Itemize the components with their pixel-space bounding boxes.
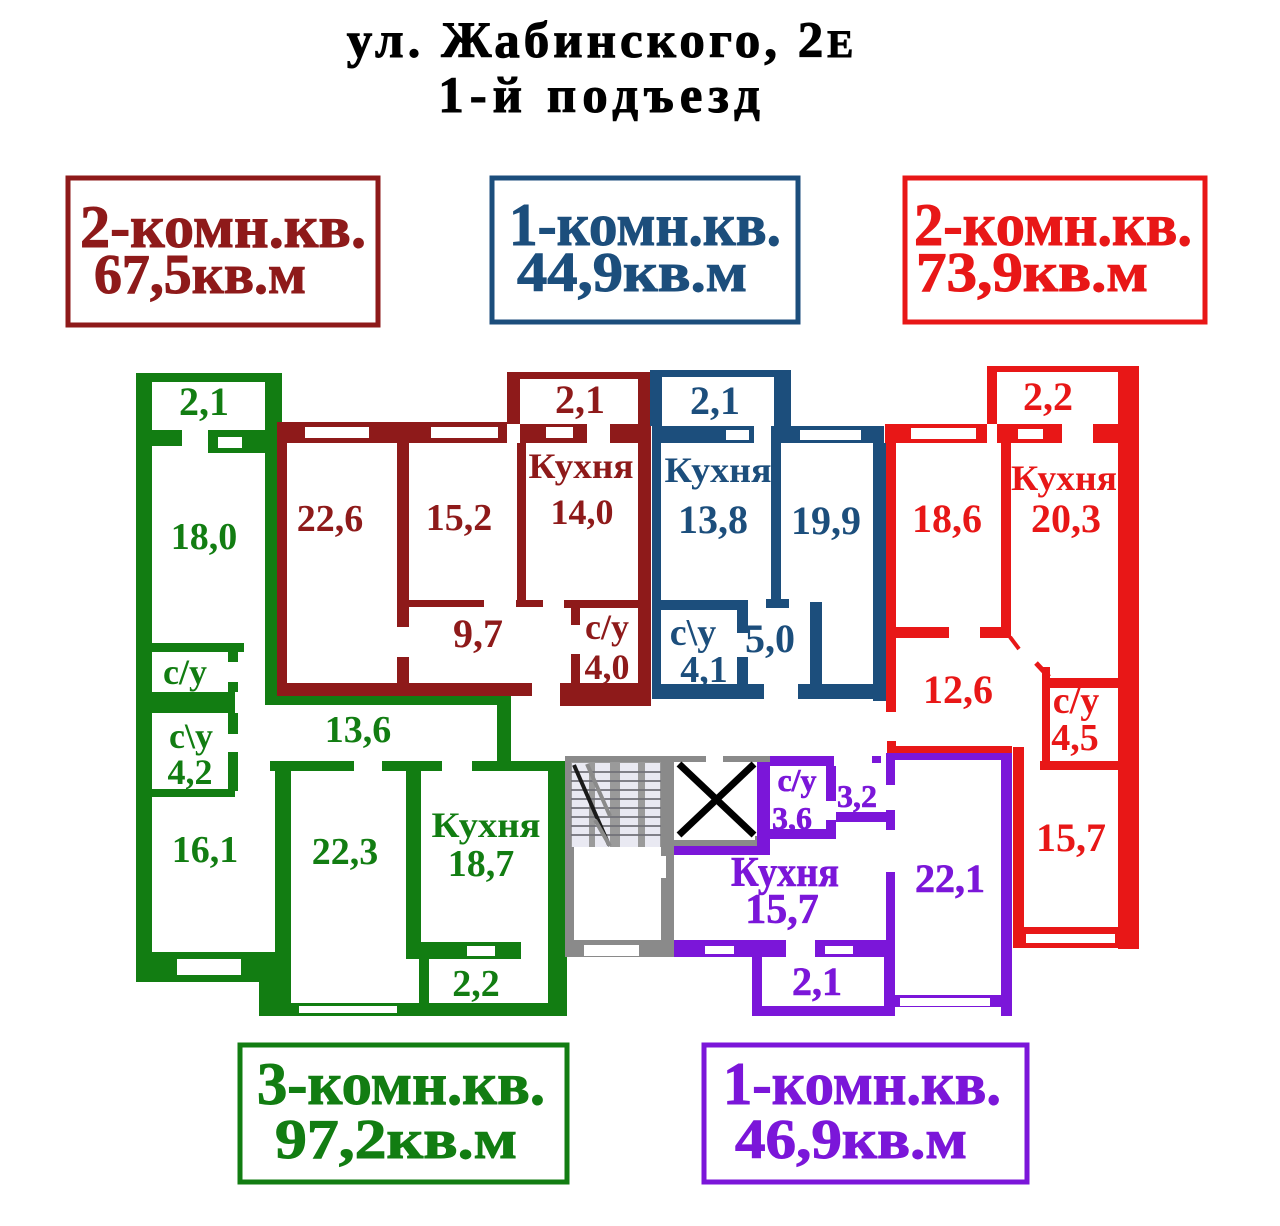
svg-text:22,1: 22,1 [915,856,985,901]
svg-text:46,9кв.м: 46,9кв.м [735,1109,967,1171]
svg-text:1-комн.кв.: 1-комн.кв. [723,1051,1001,1117]
svg-text:2,2: 2,2 [1023,374,1073,419]
svg-text:с/у: с/у [777,762,816,798]
svg-text:4,0: 4,0 [585,647,630,687]
svg-text:73,9кв.м: 73,9кв.м [916,242,1148,304]
svg-text:1-й подъезд: 1-й подъезд [438,68,766,124]
svg-text:97,2кв.м: 97,2кв.м [275,1109,517,1171]
svg-text:Кухня: Кухня [432,805,541,845]
svg-text:4,1: 4,1 [680,649,728,691]
svg-text:2,1: 2,1 [179,379,229,424]
svg-text:19,9: 19,9 [791,498,861,543]
svg-text:с\у: с\у [169,716,213,756]
svg-text:22,6: 22,6 [297,498,364,540]
svg-text:15,7: 15,7 [1036,815,1106,860]
svg-text:13,8: 13,8 [678,497,748,542]
svg-text:3,6: 3,6 [772,800,812,836]
svg-text:Кухня: Кухня [1011,458,1117,498]
svg-text:2,1: 2,1 [792,959,842,1004]
svg-text:22,3: 22,3 [312,831,379,873]
svg-text:14,0: 14,0 [551,492,614,532]
svg-text:3,2: 3,2 [837,778,877,814]
svg-text:15,7: 15,7 [745,887,819,933]
svg-text:5,0: 5,0 [745,616,795,661]
svg-text:44,9кв.м: 44,9кв.м [517,242,747,304]
svg-text:13,6: 13,6 [325,709,392,751]
svg-text:15,2: 15,2 [426,497,493,539]
svg-text:3-комн.кв.: 3-комн.кв. [257,1051,545,1117]
svg-text:с/у: с/у [1053,680,1099,722]
svg-text:ул. Жабинского, 2Е: ул. Жабинского, 2Е [347,13,858,69]
svg-text:4,2: 4,2 [168,752,213,792]
svg-text:с/у: с/у [585,607,629,647]
svg-text:18,6: 18,6 [912,496,982,541]
svg-text:с/у: с/у [163,652,207,692]
svg-text:4,5: 4,5 [1051,717,1099,759]
svg-text:18,0: 18,0 [171,516,238,558]
svg-text:16,1: 16,1 [172,829,239,871]
svg-text:12,6: 12,6 [923,667,993,712]
svg-text:20,3: 20,3 [1031,496,1101,541]
svg-text:с\у: с\у [670,612,716,654]
svg-text:Кухня: Кухня [529,446,634,486]
svg-text:Кухня: Кухня [665,450,772,490]
svg-text:2,1: 2,1 [690,378,740,423]
svg-text:9,7: 9,7 [453,611,503,656]
svg-text:2,1: 2,1 [555,377,605,422]
svg-text:67,5кв.м: 67,5кв.м [94,244,306,306]
svg-text:18,7: 18,7 [448,843,515,885]
svg-text:2,2: 2,2 [452,963,500,1005]
